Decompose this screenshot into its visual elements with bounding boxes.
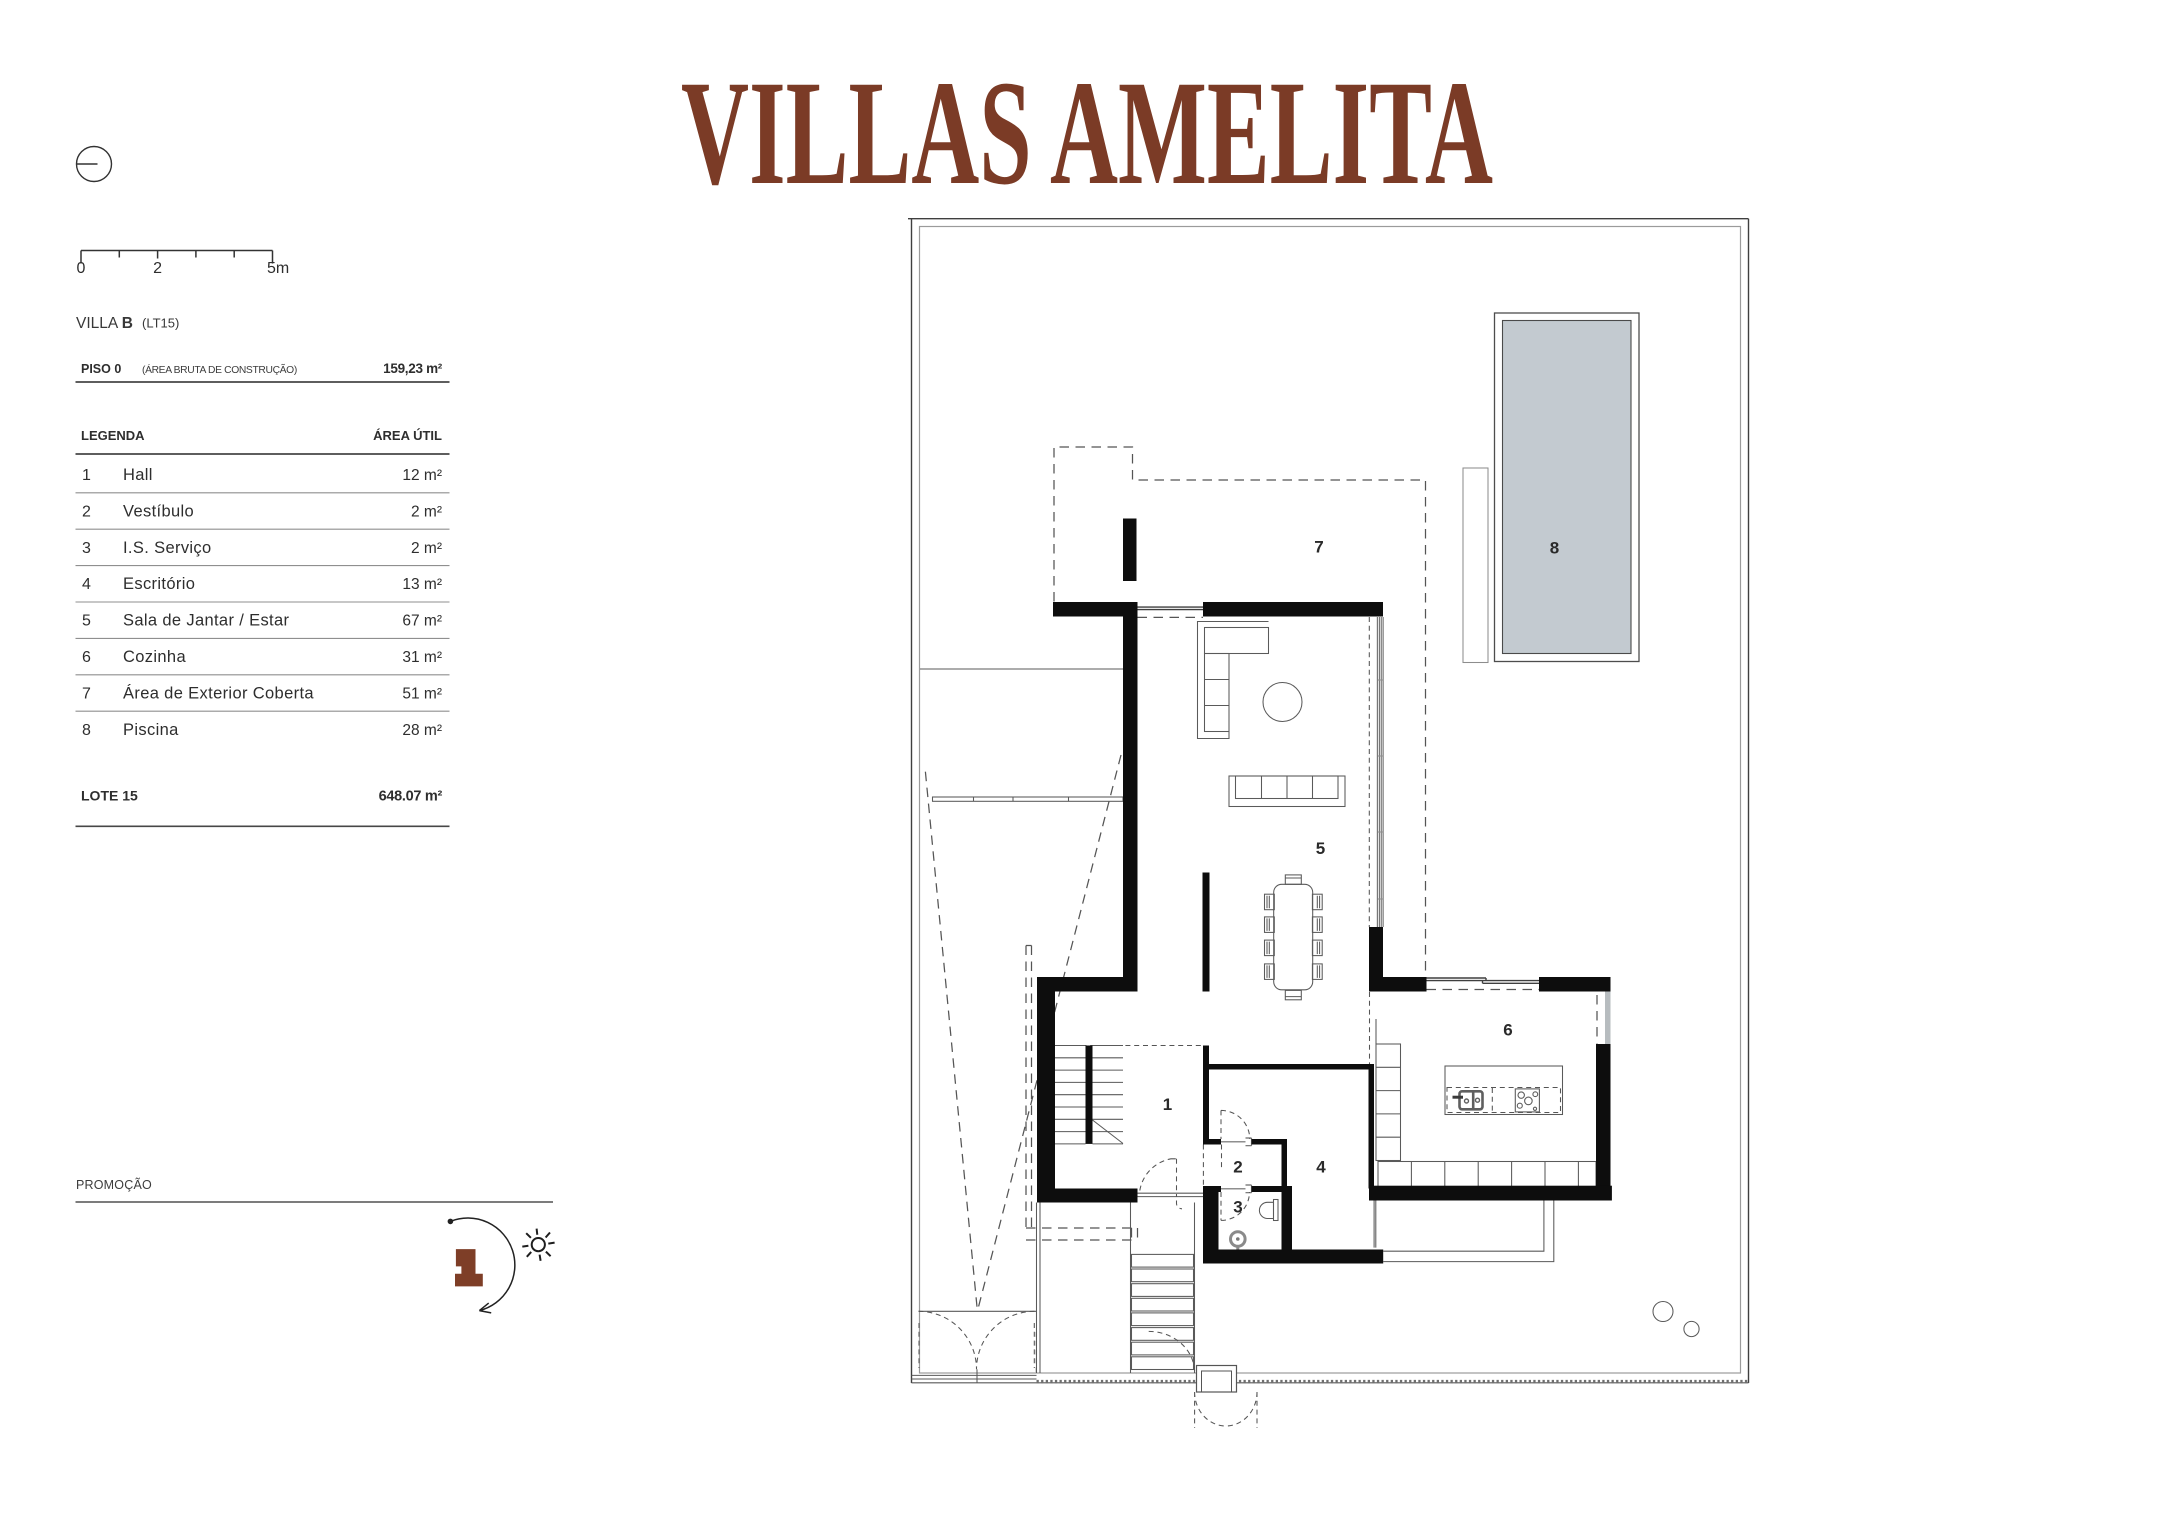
svg-text:28 m²: 28 m² xyxy=(402,722,442,739)
svg-text:Área de Exterior Coberta: Área de Exterior Coberta xyxy=(123,683,314,702)
svg-text:31 m²: 31 m² xyxy=(402,649,442,666)
svg-text:8: 8 xyxy=(1550,539,1559,558)
svg-text:7: 7 xyxy=(82,685,91,702)
svg-text:Hall: Hall xyxy=(123,466,153,484)
svg-text:159,23 m²: 159,23 m² xyxy=(383,361,443,376)
svg-text:(LT15): (LT15) xyxy=(142,316,179,331)
svg-text:7: 7 xyxy=(1314,538,1323,557)
svg-text:LEGENDA: LEGENDA xyxy=(81,428,145,443)
svg-text:ÁREA ÚTIL: ÁREA ÚTIL xyxy=(373,428,442,443)
svg-text:648.07 m²: 648.07 m² xyxy=(379,789,443,805)
svg-text:6: 6 xyxy=(1503,1021,1512,1040)
svg-text:5: 5 xyxy=(1316,839,1325,858)
svg-text:3: 3 xyxy=(1233,1198,1242,1217)
svg-text:67 m²: 67 m² xyxy=(402,613,442,630)
svg-text:2: 2 xyxy=(153,260,162,277)
svg-text:Cozinha: Cozinha xyxy=(123,648,186,666)
svg-text:0: 0 xyxy=(77,260,86,277)
svg-text:5: 5 xyxy=(82,613,91,630)
svg-text:Piscina: Piscina xyxy=(123,721,179,739)
svg-text:Sala de Jantar / Estar: Sala de Jantar / Estar xyxy=(123,612,290,630)
svg-text:LOTE 15: LOTE 15 xyxy=(81,788,138,804)
svg-text:VILLA B: VILLA B xyxy=(76,315,133,332)
svg-text:VILLAS AMELITA: VILLAS AMELITA xyxy=(681,50,1493,216)
svg-text:5m: 5m xyxy=(267,260,289,277)
svg-text:6: 6 xyxy=(82,649,91,666)
svg-text:2 m²: 2 m² xyxy=(411,540,442,557)
svg-text:I.S. Serviço: I.S. Serviço xyxy=(123,539,212,557)
svg-text:1: 1 xyxy=(1163,1095,1172,1114)
svg-text:2 m²: 2 m² xyxy=(411,503,442,520)
svg-text:13 m²: 13 m² xyxy=(402,576,442,593)
svg-text:(ÁREA BRUTA DE CONSTRUÇÃO): (ÁREA BRUTA DE CONSTRUÇÃO) xyxy=(142,363,297,376)
svg-text:Vestíbulo: Vestíbulo xyxy=(123,502,194,520)
svg-text:4: 4 xyxy=(82,576,91,593)
svg-text:1: 1 xyxy=(82,467,91,484)
svg-text:2: 2 xyxy=(1233,1158,1242,1177)
svg-text:4: 4 xyxy=(1316,1158,1326,1177)
svg-text:12 m²: 12 m² xyxy=(402,467,442,484)
svg-text:8: 8 xyxy=(82,722,91,739)
svg-text:3: 3 xyxy=(82,540,91,557)
svg-text:PROMOÇÃO: PROMOÇÃO xyxy=(76,1178,152,1192)
svg-text:2: 2 xyxy=(82,503,91,520)
svg-text:51 m²: 51 m² xyxy=(402,685,442,702)
svg-text:Escritório: Escritório xyxy=(123,575,195,593)
svg-text:PISO 0: PISO 0 xyxy=(81,362,121,376)
